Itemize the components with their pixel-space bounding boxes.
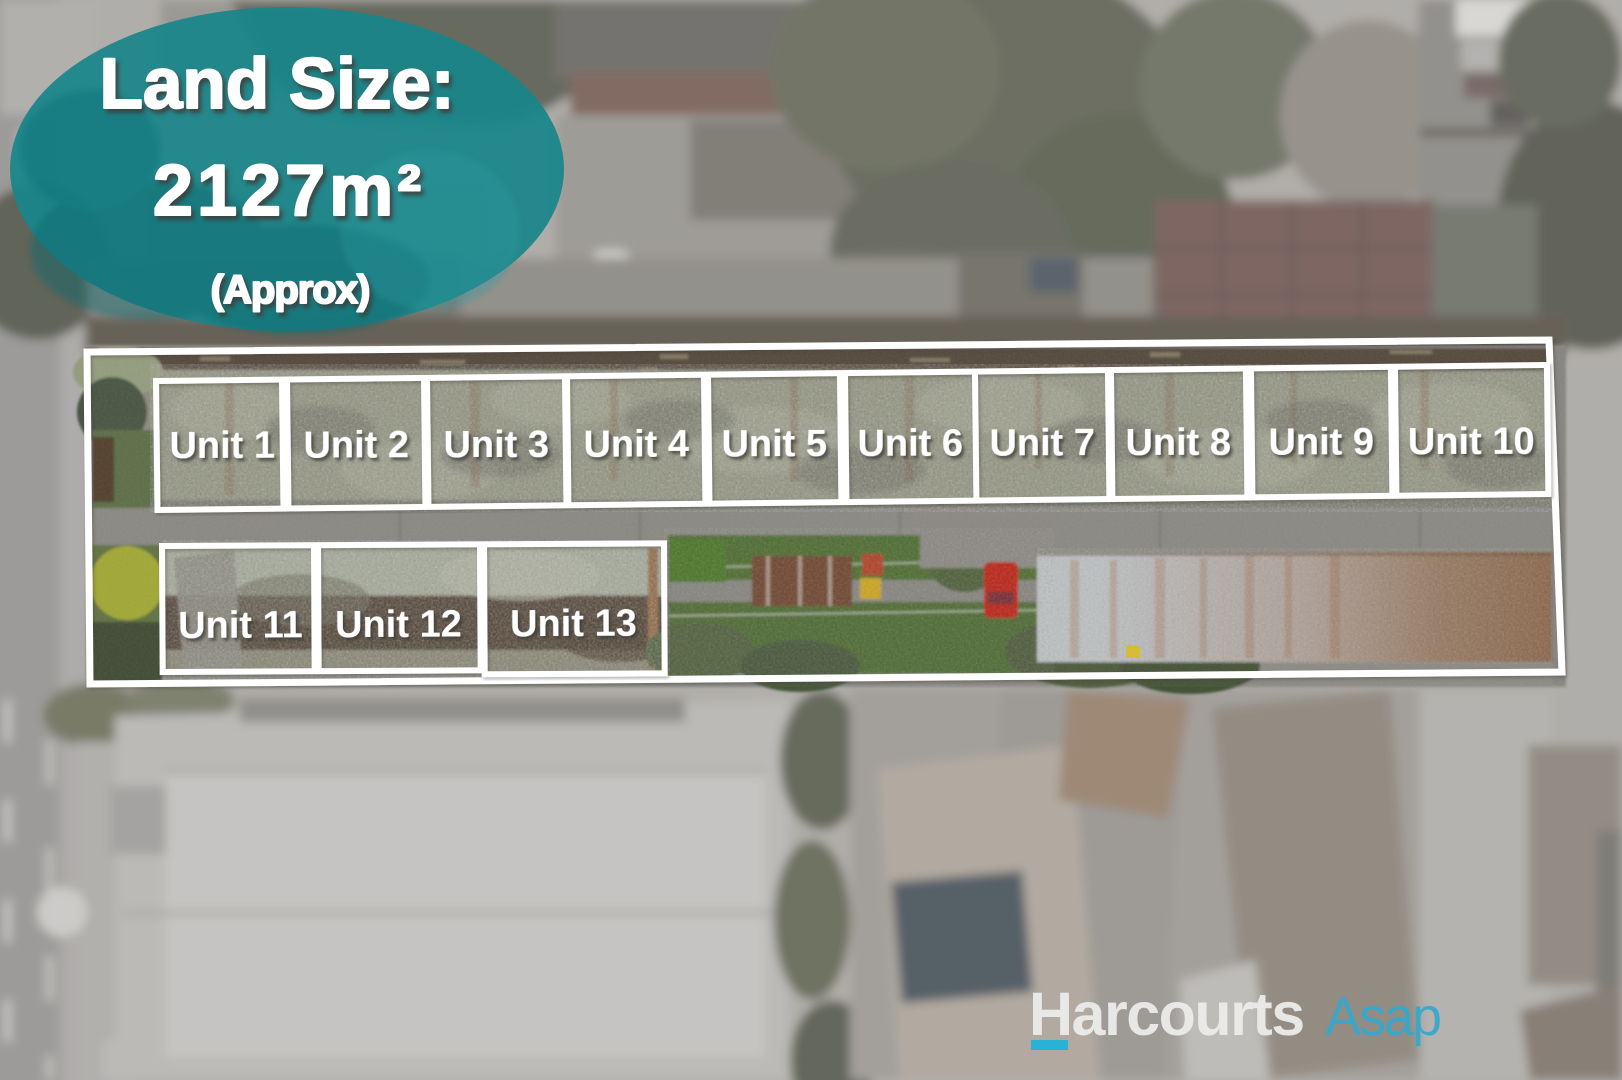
svg-text:Unit 2: Unit 2 xyxy=(303,424,409,466)
svg-text:Unit 8: Unit 8 xyxy=(1125,422,1231,464)
svg-text:2127m²: 2127m² xyxy=(153,151,425,231)
svg-text:(Approx): (Approx) xyxy=(211,268,370,312)
svg-text:Unit 1: Unit 1 xyxy=(169,425,275,467)
svg-text:Harcourts: Harcourts xyxy=(1029,980,1304,1048)
svg-text:Unit 12: Unit 12 xyxy=(335,603,462,646)
svg-text:Unit 5: Unit 5 xyxy=(721,423,827,465)
svg-text:Unit 6: Unit 6 xyxy=(857,422,963,464)
svg-text:Unit 7: Unit 7 xyxy=(989,422,1095,464)
svg-text:Unit 13: Unit 13 xyxy=(510,603,637,646)
svg-text:Asap: Asap xyxy=(1325,987,1440,1047)
svg-text:Unit 9: Unit 9 xyxy=(1268,421,1374,463)
svg-text:Unit 10: Unit 10 xyxy=(1408,421,1535,463)
svg-text:Land Size:: Land Size: xyxy=(99,45,454,124)
svg-text:Unit 11: Unit 11 xyxy=(178,604,303,647)
svg-text:Unit 4: Unit 4 xyxy=(583,423,689,465)
svg-text:Unit 3: Unit 3 xyxy=(443,424,549,466)
